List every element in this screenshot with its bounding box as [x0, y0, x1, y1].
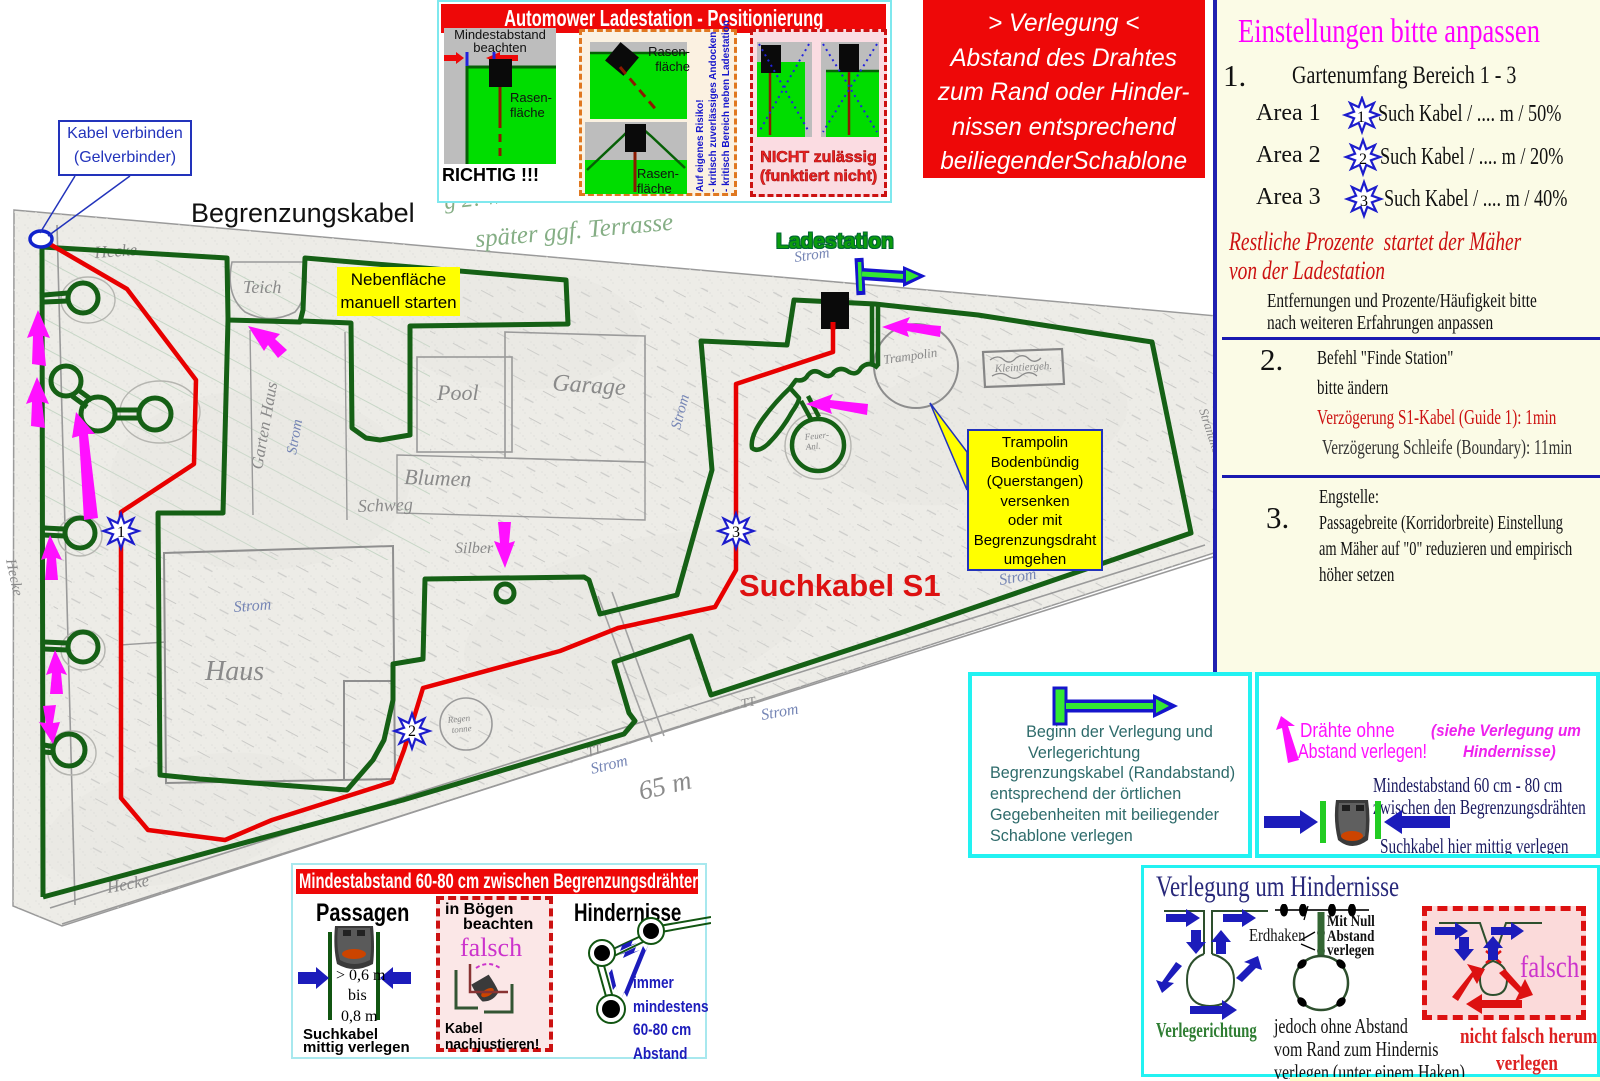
- svg-text:2: 2: [1359, 151, 1367, 168]
- svg-text:Strom: Strom: [760, 701, 800, 724]
- svg-text:Garage: Garage: [552, 370, 627, 401]
- svg-text:1: 1: [117, 524, 125, 541]
- svg-text:Haus: Haus: [204, 656, 264, 687]
- svg-text:2: 2: [408, 723, 416, 740]
- svg-text:Teich: Teich: [243, 277, 281, 297]
- svg-text:Anl.: Anl.: [804, 441, 821, 453]
- svg-text:Strom: Strom: [233, 596, 272, 616]
- svg-text:Blumen: Blumen: [404, 464, 472, 491]
- svg-text:Silber: Silber: [455, 540, 494, 557]
- svg-text:tonne: tonne: [451, 723, 472, 735]
- svg-text:1: 1: [1357, 109, 1365, 126]
- svg-text:3: 3: [1360, 193, 1368, 210]
- svg-text:später ggf. Terrasse: später ggf. Terrasse: [474, 209, 674, 253]
- svg-text:Schweg: Schweg: [357, 494, 413, 516]
- svg-text:3: 3: [732, 524, 740, 541]
- svg-text:Pool: Pool: [436, 380, 479, 405]
- svg-text:65 m: 65 m: [636, 765, 695, 806]
